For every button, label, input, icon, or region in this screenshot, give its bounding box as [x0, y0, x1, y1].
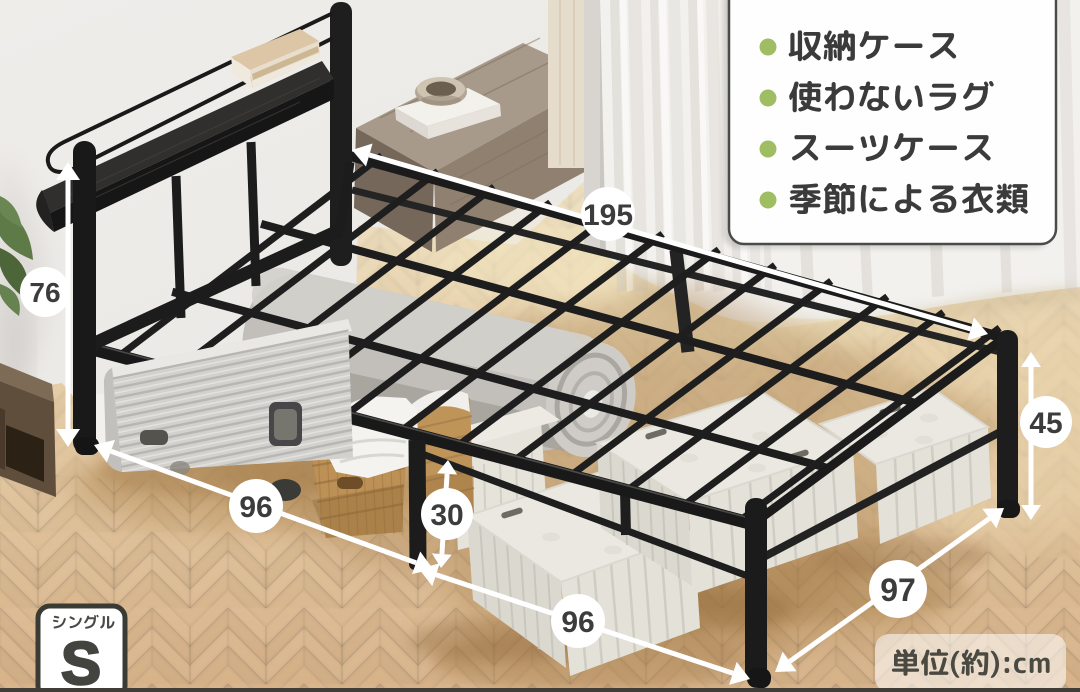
svg-text:45: 45 — [1029, 407, 1062, 440]
svg-text:96: 96 — [239, 491, 272, 524]
svg-text:195: 195 — [583, 199, 633, 232]
svg-text:76: 76 — [29, 277, 60, 308]
svg-text:96: 96 — [561, 606, 594, 639]
svg-text:S: S — [61, 630, 101, 692]
svg-text:97: 97 — [880, 572, 916, 608]
svg-text:30: 30 — [430, 499, 463, 532]
